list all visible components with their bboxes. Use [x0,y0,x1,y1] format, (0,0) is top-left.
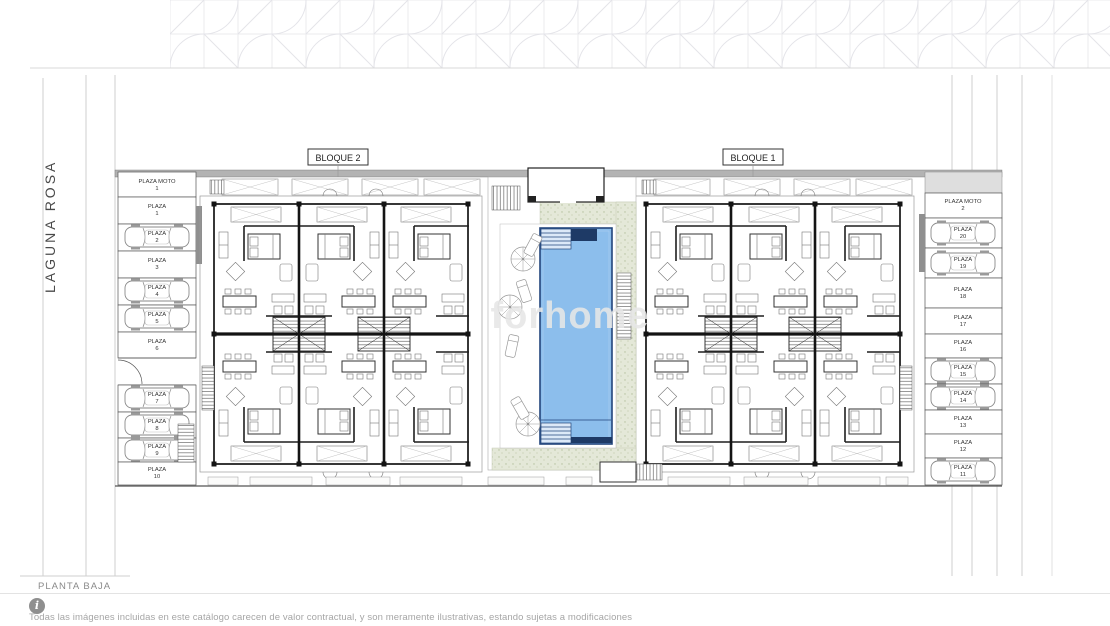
exterior-stair [900,366,912,410]
parking-stall: PLAZA 3 [118,251,196,278]
street-left [20,75,130,576]
car-icon [931,221,995,246]
stall-number: 8 [155,426,158,432]
exterior-stair [202,366,214,410]
block-1-title: BLOQUE 1 [730,153,775,163]
parking-stall: PLAZA 1 [118,197,196,224]
parking-stall: PLAZA 11 [925,458,1002,485]
parking-stall: PLAZA 5 [118,305,196,332]
stall-name: PLAZA MOTO [945,199,982,205]
car-icon [125,386,189,411]
watermark-text: forhome [491,295,650,337]
stall-number: 18 [960,294,966,300]
stall-name: PLAZA [954,465,972,471]
stall-name: PLAZA [954,440,972,446]
planter-strip [208,477,908,485]
stall-number: 2 [961,206,964,212]
stall-name: PLAZA [148,204,166,210]
stall-name: PLAZA [954,287,972,293]
car-icon [125,306,189,331]
disclaimer-text: Todas las imágenes incluidas en este cat… [29,612,632,623]
parking-stall: PLAZA 4 [118,278,196,305]
parking-stall: PLAZA 18 [925,278,1002,308]
wall-segment [196,206,202,264]
parking-column-left: PLAZA MOTO 1 PLAZA 1 PLAZA 2 PLAZA 3 PLA… [118,172,202,485]
stall-name: PLAZA [954,315,972,321]
courtyard-stair [492,186,520,210]
stall-name: PLAZA [148,339,166,345]
parking-stall: PLAZA 10 [118,462,196,485]
car-icon [931,459,995,484]
decorative-pattern-band [170,0,1110,68]
parking-stall: PLAZA 6 [118,332,196,358]
parking-stall: PLAZA 2 [118,224,196,251]
stall-number: 6 [155,346,158,352]
stall-number: 16 [960,347,966,353]
wall-segment [919,214,925,272]
stall-name: PLAZA [148,392,166,398]
stall-name: PLAZA [954,391,972,397]
site-plan-canvas: LAGUNA ROSA PLAZA MOTO 1 PLAZA 1 PLAZA 2… [0,0,1110,626]
parking-column-right: PLAZA MOTO 2 PLAZA 20 PLAZA 19 PLAZA 18 … [919,172,1002,485]
stall-number: 5 [155,319,158,325]
stall-number: 3 [155,265,158,271]
stall-name: PLAZA [954,257,972,263]
stall-name: PLAZA [148,231,166,237]
stall-name: PLAZA [954,416,972,422]
stall-number: 2 [155,238,158,244]
stall-name: PLAZA [148,312,166,318]
stall-number: 7 [155,399,158,405]
parking-stall: PLAZA 20 [925,218,1002,248]
stall-number: 14 [960,398,967,404]
parking-stall: PLAZA 19 [925,248,1002,278]
entrance-door-arc [118,360,142,384]
car-icon [931,251,995,276]
stall-name: PLAZA [148,258,166,264]
parking-stall: PLAZA 16 [925,334,1002,358]
parking-stall: PLAZA 15 [925,358,1002,384]
stall-name: PLAZA [954,227,972,233]
street-name-label: LAGUNA ROSA [42,160,58,293]
stall-name: PLAZA [148,444,166,450]
parking-stall: PLAZA MOTO 1 [118,172,196,197]
south-entrance [600,462,662,482]
stall-number: 15 [960,372,966,378]
parking-stall: PLAZA 12 [925,434,1002,458]
stall-number: 1 [155,186,158,192]
stall-name: PLAZA [148,285,166,291]
stall-name: PLAZA [148,419,166,425]
stall-name: PLAZA [954,365,972,371]
stall-number: 11 [960,472,966,478]
stall-number: 12 [960,447,966,453]
stall-number: 10 [154,474,160,480]
building-bloque-2 [200,179,482,479]
stall-number: 19 [960,264,966,270]
wall-segment [925,172,1002,193]
exterior-stair [178,424,194,462]
parking-stall: PLAZA MOTO 2 [925,193,1002,218]
plan-title: PLANTA BAJA [38,581,111,592]
building-bloque-1 [632,179,914,479]
car-icon [125,225,189,250]
entrance-pavilion [528,168,604,203]
car-icon [931,385,995,410]
stall-name: PLAZA MOTO [139,179,176,185]
car-icon [931,359,995,384]
stall-number: 9 [155,451,158,457]
stall-number: 20 [960,234,966,240]
footer-divider [0,593,1110,594]
stall-number: 1 [155,211,158,217]
parking-stall: PLAZA 7 [118,385,196,412]
stall-name: PLAZA [954,340,972,346]
block-2-title: BLOQUE 2 [315,153,360,163]
parking-stall: PLAZA 14 [925,384,1002,410]
parking-stall: PLAZA 17 [925,308,1002,334]
stall-number: 13 [960,423,966,429]
car-icon [125,279,189,304]
stall-name: PLAZA [148,467,166,473]
parking-stall: PLAZA 13 [925,410,1002,434]
stall-number: 17 [960,322,966,328]
